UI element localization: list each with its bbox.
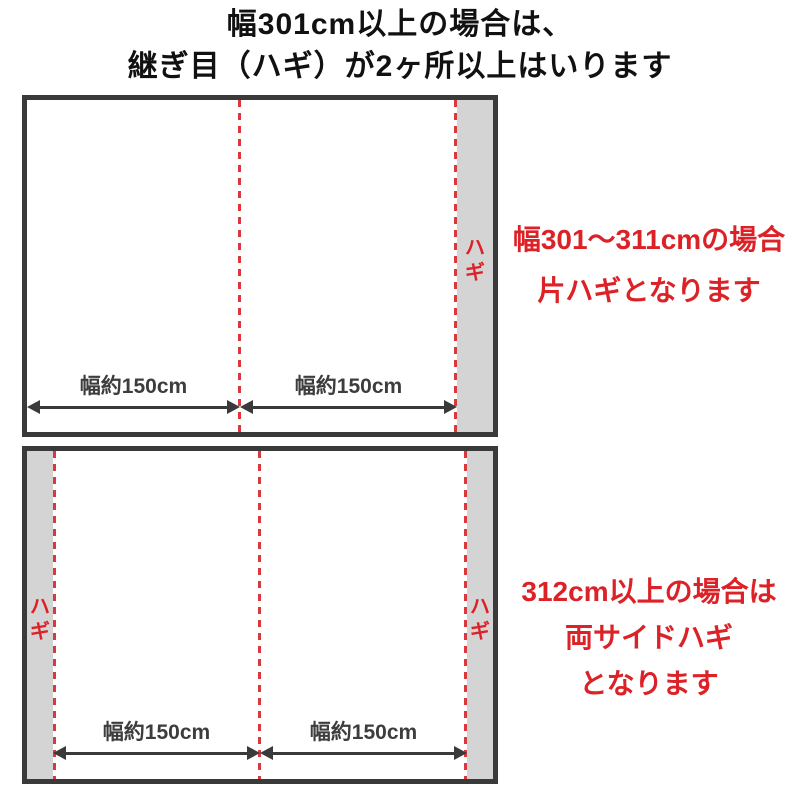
- page-title: 幅301cm以上の場合は、 継ぎ目（ハギ）が2ヶ所以上はいります: [0, 4, 800, 88]
- note-double-hagi-line-2: 両サイドハギ: [498, 615, 800, 661]
- width-label-left: 幅約150cm: [27, 375, 240, 399]
- width-arrow-right: [260, 745, 467, 761]
- width-label-right: 幅約150cm: [260, 721, 467, 745]
- note-single-hagi-line-1: 幅301〜311cmの場合: [498, 214, 800, 265]
- width-label-left: 幅約150cm: [53, 721, 260, 745]
- note-double-hagi-line-1: 312cm以上の場合は: [498, 569, 800, 615]
- hagi-vertical-label-left: ハギ: [29, 595, 51, 645]
- note-double-hagi: 312cm以上の場合は 両サイドハギ となります: [498, 569, 800, 707]
- note-single-hagi-line-2: 片ハギとなります: [498, 265, 800, 316]
- note-single-hagi: 幅301〜311cmの場合 片ハギとなります: [498, 214, 800, 316]
- title-line-2: 継ぎ目（ハギ）が2ヶ所以上はいります: [0, 46, 800, 88]
- width-arrow-left: [27, 399, 240, 415]
- note-double-hagi-line-3: となります: [498, 661, 800, 707]
- width-arrow-right: [240, 399, 457, 415]
- title-line-1: 幅301cm以上の場合は、: [0, 4, 800, 46]
- hagi-vertical-label-right: ハギ: [469, 595, 491, 645]
- fabric-seam-infographic: 幅301cm以上の場合は、 継ぎ目（ハギ）が2ヶ所以上はいります ハギ 幅約15…: [0, 0, 800, 800]
- hagi-vertical-label: ハギ: [464, 236, 486, 286]
- fabric-diagram-single-hagi: ハギ 幅約150cm 幅約150cm: [22, 95, 498, 437]
- width-label-right: 幅約150cm: [240, 375, 457, 399]
- width-arrow-left: [53, 745, 260, 761]
- fabric-diagram-double-hagi: ハギ ハギ 幅約150cm 幅約150cm: [22, 446, 498, 784]
